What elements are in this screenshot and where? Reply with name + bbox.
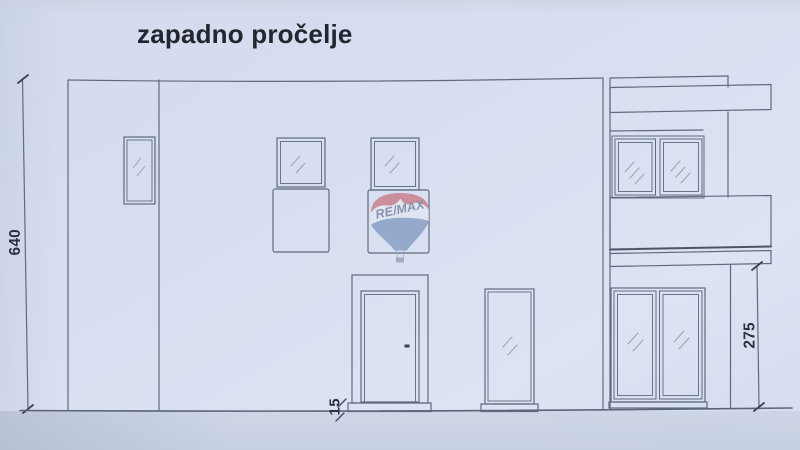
svg-text:15: 15 xyxy=(327,398,344,416)
svg-text:275: 275 xyxy=(741,322,758,349)
svg-text:640: 640 xyxy=(7,229,24,255)
svg-text:zapadno pročelje: zapadno pročelje xyxy=(137,19,353,49)
